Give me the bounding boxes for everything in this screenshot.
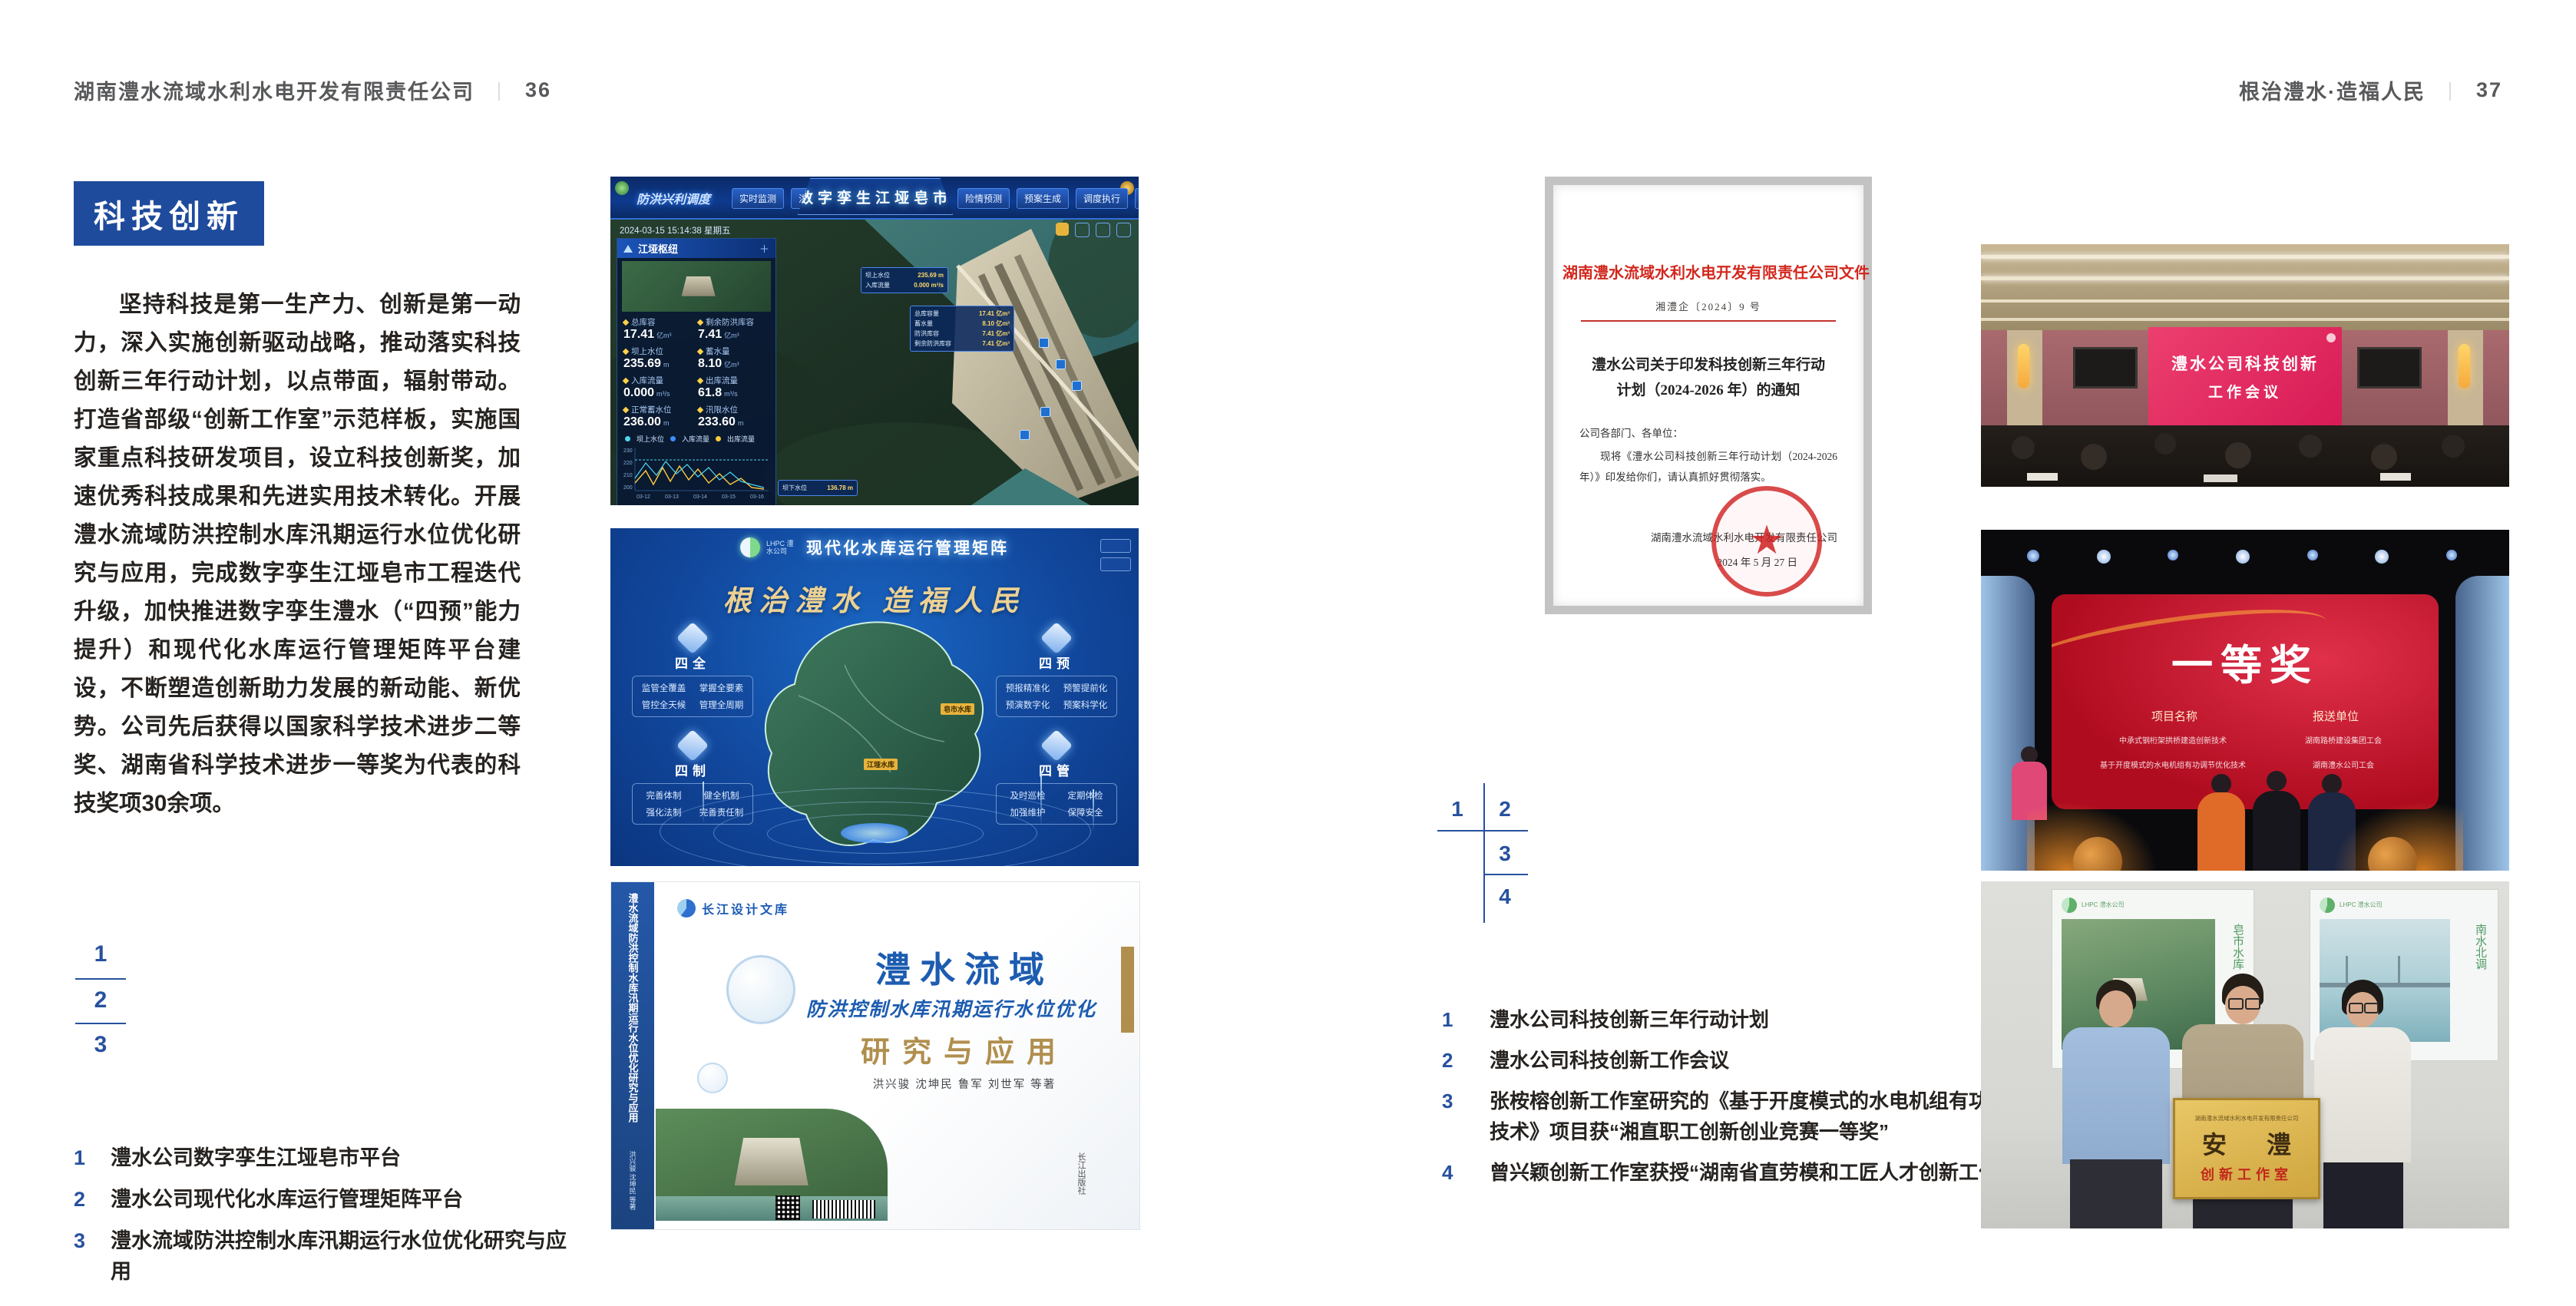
page-header-right: 根治澧水·造福人民 ｜ 37	[2239, 75, 2502, 105]
figure-key-2: 2	[1490, 797, 1520, 822]
key-divider	[1437, 830, 1528, 832]
expand-icon[interactable]: ＋	[759, 241, 769, 256]
meeting-screen: 澧水公司科技创新 工作会议	[2148, 327, 2342, 425]
caption-row: 1 澧水公司数字孪生江垭皂市平台	[74, 1142, 580, 1173]
reservoir-marker[interactable]: 皂市水库	[941, 703, 974, 715]
page-motto: 根治澧水·造福人民	[2239, 75, 2426, 105]
gate-marker[interactable]	[1072, 381, 1082, 391]
wall-sconce	[2018, 344, 2029, 388]
person-trousers	[2070, 1159, 2162, 1228]
panel-icon	[1040, 729, 1073, 762]
light-pillar	[703, 782, 704, 823]
section-badge: 科技创新	[74, 181, 264, 246]
bridge-pylon-shape	[2398, 956, 2400, 987]
company-name: 湖南澧水流域水利水电开发有限责任公司	[74, 75, 475, 105]
stat-cell: 剩余防洪库容7.41亿m³	[698, 316, 769, 342]
legend-dot	[670, 436, 676, 441]
screen-title-line1: 澧水公司科技创新	[2171, 352, 2319, 375]
document-page: 湖南澧水流域水利水电开发有限责任公司文件 湘澧企〔2024〕9 号 澧水公司关于…	[1553, 185, 1863, 606]
award-org-2: 湖南澧水公司工会	[2282, 759, 2405, 770]
layers-icon[interactable]	[1075, 223, 1090, 237]
panel-name: 四预	[996, 653, 1117, 672]
nav-button[interactable]: 险情预测	[957, 188, 1010, 209]
qr-code	[775, 1195, 800, 1220]
poster-brand: LHPC 澧水公司	[2082, 901, 2125, 909]
attendee-silhouette	[2442, 435, 2465, 458]
light-pillar	[1040, 772, 1042, 826]
plaque-header: 湖南澧水流域水利水电开发有限责任公司	[2195, 1114, 2299, 1122]
matrix-header: LHPC 澧水公司 现代化水库运行管理矩阵	[610, 528, 1139, 559]
bubble-graphic	[697, 1063, 728, 1093]
poster-bridge	[2320, 919, 2450, 1042]
corner-logo-icon	[615, 181, 629, 195]
figure-key-2: 2	[74, 987, 127, 1013]
key-divider	[75, 978, 126, 980]
ring-core-glow	[841, 823, 908, 843]
nav-button[interactable]: 预案生成	[1017, 188, 1069, 209]
poster-title-vertical: 南水北调	[2472, 924, 2488, 970]
gold-bar	[1121, 947, 1134, 1033]
dam-thumb-shape	[682, 276, 716, 296]
dam-shape	[735, 1138, 809, 1185]
figure-book-cover: 澧水流域防洪控制水库汛期运行水位优化研究与应用 洪兴骏 沈坤民 等著 长江设计文…	[610, 881, 1140, 1230]
book-title-3: 研究与应用	[803, 1028, 1126, 1070]
document-letterhead: 湖南澧水流域水利水电开发有限责任公司文件	[1562, 260, 1854, 283]
caption-text: 澧水公司现代化水库运行管理矩阵平台	[111, 1184, 463, 1215]
figure-key-3: 3	[74, 1032, 127, 1058]
seal-star-icon: ★	[1749, 521, 1785, 561]
document-subject: 澧水公司关于印发科技创新三年行动计划（2024-2026 年）的通知	[1586, 352, 1831, 403]
award-col2-header: 报送单位	[2274, 708, 2397, 724]
panel-icon	[676, 729, 709, 762]
barcode	[812, 1200, 875, 1218]
panel-name: 四管	[996, 760, 1117, 779]
platform-title-plate: 数字孪生江垭皂市	[798, 178, 953, 215]
legend-dot	[716, 436, 721, 441]
spine-authors: 洪兴骏 沈坤民 等著	[628, 1151, 638, 1220]
bridge-pylon-shape	[2346, 956, 2348, 987]
person-face	[2099, 990, 2133, 1027]
glasses-icon	[2364, 1003, 2379, 1013]
award-col1-header: 项目名称	[2098, 708, 2251, 724]
downstream-level-tag: 坝下水位136.78 m	[778, 480, 858, 496]
spotlight	[2307, 550, 2318, 560]
body-paragraph: 坚持科技是第一生产力、创新是第一动力，深入实施创新驱动战略，推动落实科技创新三年…	[74, 286, 521, 823]
paper-on-desk	[2027, 473, 2058, 481]
ceiling-light-strip	[1981, 299, 2509, 303]
water-level-tag: 坝上水位235.69 m 入库流量0.000 m³/s	[861, 267, 948, 293]
page-number-right: 37	[2476, 78, 2502, 102]
chart-legend: 坝上水位 入库流量 出库流量	[617, 431, 775, 444]
host-silhouette-head	[2021, 746, 2038, 763]
lhpc-logo-icon	[2320, 898, 2335, 913]
figure-award-photo: 一等奖 项目名称 报送单位 中承式钢桁架拱桥建造创新技术 湖南路桥建设集团工会 …	[1981, 530, 2509, 871]
gate-marker[interactable]	[1020, 430, 1030, 440]
stat-cell: 入库流量0.000m³/s	[623, 375, 695, 400]
award-title: 一等奖	[2052, 631, 2439, 692]
svg-text:03-15: 03-15	[722, 494, 736, 500]
platform-toolbar-icons	[1056, 223, 1131, 237]
stat-cell: 汛限水位233.60m	[698, 404, 769, 429]
recipient-body-orange	[2197, 792, 2245, 871]
station-data-panel: 江垭枢纽 ＋ 总库容17.41亿m³ 剩余防洪库容7.41亿m³ 坝上水位235…	[617, 238, 776, 505]
svg-text:03-12: 03-12	[637, 494, 650, 500]
award-org-1: 湖南路桥建设集团工会	[2282, 734, 2405, 746]
book-authors: 洪兴骏 沈坤民 鲁军 刘世军 等著	[803, 1076, 1126, 1092]
platform-title: 数字孪生江垭皂市	[799, 187, 952, 207]
award-project-2: 基于开度模式的水电机组有功调节优化技术	[2065, 759, 2280, 770]
attendee-silhouette	[2299, 435, 2322, 458]
caption-number: 4	[1442, 1157, 1476, 1188]
book-title-2: 防洪控制水库汛期运行水位优化	[771, 994, 1132, 1022]
svg-text:220: 220	[623, 461, 633, 466]
spine-title: 澧水流域防洪控制水库汛期运行水位优化研究与应用	[626, 893, 640, 1146]
attendee-silhouette	[2012, 436, 2035, 459]
paper-on-desk	[2204, 474, 2237, 482]
gate-marker[interactable]	[1040, 407, 1050, 417]
poster-title-vertical: 皂市水库	[2230, 924, 2246, 970]
key-divider	[75, 1023, 126, 1024]
water-level-chart: 230220 210200 03-1203-13 03-1403-15 03-1…	[623, 445, 770, 501]
attendee-silhouette	[2081, 444, 2107, 470]
caption-number: 2	[74, 1184, 94, 1215]
screen-title-line2: 工作会议	[2208, 381, 2282, 402]
recipient-head	[2211, 774, 2231, 794]
audience-area	[1981, 425, 2509, 487]
panel-name: 四制	[632, 760, 753, 779]
poster-brand: LHPC 澧水公司	[2340, 901, 2383, 909]
recipient-head	[2267, 771, 2287, 791]
plaque-calligraphy: 安 澧	[2185, 1126, 2308, 1161]
plaque-label: 创新工作室	[2201, 1164, 2293, 1184]
matrix-brand: LHPC 澧水公司	[766, 540, 800, 555]
gate-marker[interactable]	[1039, 338, 1049, 348]
bridge-deck-shape	[2320, 983, 2450, 987]
capacity-tag: 总库容量17.41 亿m³ 蓄水量8.10 亿m³ 防洪库容7.41 亿m³ 剩…	[910, 306, 1014, 352]
panel-icon	[676, 622, 709, 654]
ceiling-light-strip	[1981, 255, 2509, 259]
figure-captions-left: 1 澧水公司数字孪生江垭皂市平台 2 澧水公司现代化水库运行管理矩阵平台 3 澧…	[74, 1142, 580, 1298]
stats-grid: 总库容17.41亿m³ 剩余防洪库容7.41亿m³ 坝上水位235.69m 蓄水…	[617, 315, 775, 431]
stat-cell: 蓄水量8.10亿m³	[698, 346, 769, 371]
light-pillar	[1093, 789, 1094, 832]
user-icon[interactable]	[1056, 223, 1069, 236]
wall-sconce	[2459, 344, 2470, 388]
person-shirt-white	[2314, 1027, 2411, 1162]
matrix-mini-button[interactable]	[1100, 539, 1131, 553]
legend-dot	[625, 436, 630, 441]
caption-number: 1	[74, 1142, 94, 1173]
publisher-logo-icon	[677, 899, 696, 918]
stage-side-panel-right	[2455, 576, 2509, 871]
innovation-plaque: 湖南澧水流域水利水电开发有限责任公司 安 澧 创新工作室	[2173, 1098, 2320, 1199]
lhpc-logo-icon	[2062, 898, 2077, 913]
nav-button[interactable]: 调度执行	[1076, 188, 1128, 209]
attendee-silhouette	[2154, 433, 2176, 455]
figure-key-3: 3	[1490, 841, 1520, 866]
brand-text: 长江设计文库	[702, 899, 789, 918]
book-spine: 澧水流域防洪控制水库汛期运行水位优化研究与应用 洪兴骏 沈坤民 等著	[611, 882, 654, 1229]
figure-official-document: 湖南澧水流域水利水电开发有限责任公司文件 湘澧企〔2024〕9 号 澧水公司关于…	[1545, 177, 1872, 614]
panel-title: 江垭枢纽	[638, 241, 678, 256]
spotlight	[2375, 550, 2389, 564]
station-thumbnail	[622, 261, 771, 312]
header-divider: ｜	[2441, 77, 2461, 104]
stat-cell: 出库流量61.8m³/s	[698, 375, 769, 400]
svg-text:03-13: 03-13	[665, 494, 679, 500]
key-divider-vertical	[1483, 783, 1485, 923]
caption-text: 澧水公司数字孪生江垭皂市平台	[111, 1142, 401, 1173]
svg-text:200: 200	[623, 485, 633, 491]
wall-tv	[2073, 347, 2138, 388]
matrix-slogan: 根治澧水 造福人民	[610, 577, 1139, 619]
svg-text:230: 230	[623, 448, 633, 454]
caption-number: 3	[74, 1225, 94, 1287]
key-divider	[1483, 874, 1528, 875]
caption-number: 3	[1442, 1086, 1476, 1147]
figure-management-matrix: LHPC 澧水公司 现代化水库运行管理矩阵 根治澧水 造福人民 皂市水库 江垭水…	[610, 528, 1139, 866]
matrix-panel-siyu: 四预 预报精准化预警提前化预演数字化预案科学化	[996, 627, 1117, 717]
caption-row: 3 澧水流域防洪控制水库汛期运行水位优化研究与应用	[74, 1225, 580, 1287]
person-trousers	[2323, 1162, 2403, 1228]
page-number-left: 36	[525, 78, 551, 102]
official-seal: ★	[1711, 486, 1822, 597]
spotlight	[2236, 550, 2250, 564]
platform-timestamp: 2024-03-15 15:14:38 星期五	[620, 224, 730, 236]
sail-icon	[623, 245, 633, 253]
caption-text: 澧水流域防洪控制水库汛期运行水位优化研究与应用	[111, 1225, 580, 1287]
matrix-panel-siquan: 四全 监管全覆盖掌握全要素管控全天候管理全周期	[632, 627, 753, 717]
figure-key-1: 1	[74, 941, 127, 967]
alert-icon[interactable]	[1116, 223, 1131, 237]
attendee-silhouette	[2371, 444, 2397, 470]
matrix-mini-button[interactable]	[1100, 557, 1131, 571]
screen-logo-icon	[2326, 333, 2336, 342]
figure-key-4: 4	[1490, 884, 1520, 909]
platform-nav-right: 险情预测 预案生成 调度执行 工程导览	[957, 188, 1139, 209]
figure-plaque-photo: LHPC 澧水公司 皂市水库 LHPC 澧水公司 南水北调 湖南澧水流域水利水电…	[1981, 881, 2509, 1228]
svg-text:210: 210	[623, 473, 633, 478]
reservoir-marker[interactable]: 江垭水库	[864, 759, 898, 770]
spotlight	[2097, 550, 2111, 564]
gate-marker[interactable]	[1056, 359, 1066, 369]
book-colophon: 长江出版社	[1075, 1152, 1087, 1195]
glasses-icon	[2245, 998, 2260, 1010]
lhpc-logo-icon	[740, 537, 760, 557]
recipient-body-suit	[2253, 791, 2300, 871]
spotlight	[2168, 550, 2178, 560]
locate-icon[interactable]	[1096, 223, 1110, 237]
page-header-left: 湖南澧水流域水利水电开发有限责任公司 ｜ 36	[74, 75, 551, 105]
person-shirt-blue	[2062, 1027, 2170, 1164]
header-divider: ｜	[490, 77, 510, 104]
caption-number: 2	[1442, 1045, 1476, 1076]
recipient-head	[2322, 774, 2342, 794]
ceiling-light-strip	[1981, 318, 2509, 321]
glasses-icon	[2349, 1003, 2363, 1013]
letterhead-rule	[1581, 320, 1836, 322]
caption-row: 2 澧水公司现代化水库运行管理矩阵平台	[74, 1184, 580, 1215]
svg-text:03-16: 03-16	[750, 494, 764, 500]
ceiling-light-strip	[1981, 276, 2509, 280]
figure-meeting-photo: 澧水公司科技创新 工作会议	[1981, 244, 2509, 487]
book-brand: 长江设计文库	[677, 899, 789, 918]
panel-icon	[1040, 622, 1073, 654]
stat-cell: 坝上水位235.69m	[623, 346, 695, 371]
matrix-title: 现代化水库运行管理矩阵	[806, 536, 1009, 559]
panel-header: 江垭枢纽 ＋	[617, 239, 775, 258]
brochure-spread: { "header": { "left": {"company": "湖南澧水流…	[0, 0, 2576, 1306]
glasses-icon	[2228, 998, 2244, 1010]
document-number: 湘澧企〔2024〕9 号	[1553, 299, 1863, 313]
figure-digital-twin-platform: 防洪兴利调度 实时监测 洪水预报 防洪预警 数字孪生江垭皂市 险情预测 预案生成…	[610, 177, 1139, 505]
paper-on-desk	[2380, 473, 2411, 481]
wall-tv	[2357, 347, 2422, 388]
document-salutation: 公司各部门、各单位：	[1579, 425, 1683, 440]
nav-button[interactable]: 实时监测	[732, 188, 784, 209]
caption-number: 1	[1442, 1004, 1476, 1035]
nav-button[interactable]: 工程导览	[1135, 188, 1139, 209]
svg-text:03-14: 03-14	[693, 494, 707, 500]
figure-key-1: 1	[1442, 797, 1473, 822]
spotlight	[2027, 550, 2039, 562]
award-screen: 一等奖 项目名称 报送单位 中承式钢桁架拱桥建造创新技术 湖南路桥建设集团工会 …	[2052, 594, 2439, 809]
award-project-1: 中承式钢桁架拱桥建造创新技术	[2065, 734, 2280, 746]
stat-cell: 总库容17.41亿m³	[623, 316, 695, 342]
spotlight	[2446, 550, 2457, 560]
platform-subtitle: 防洪兴利调度	[637, 189, 710, 207]
document-body: 现将《澧水公司科技创新三年行动计划（2024-2026 年）》印发给你们，请认真…	[1579, 446, 1837, 488]
stat-cell: 正常蓄水位236.00m	[623, 404, 695, 429]
book-title-1: 澧水流域	[803, 942, 1126, 993]
panel-name: 四全	[632, 653, 753, 672]
attendee-silhouette	[2225, 442, 2251, 468]
stage-lights	[2027, 550, 2457, 580]
